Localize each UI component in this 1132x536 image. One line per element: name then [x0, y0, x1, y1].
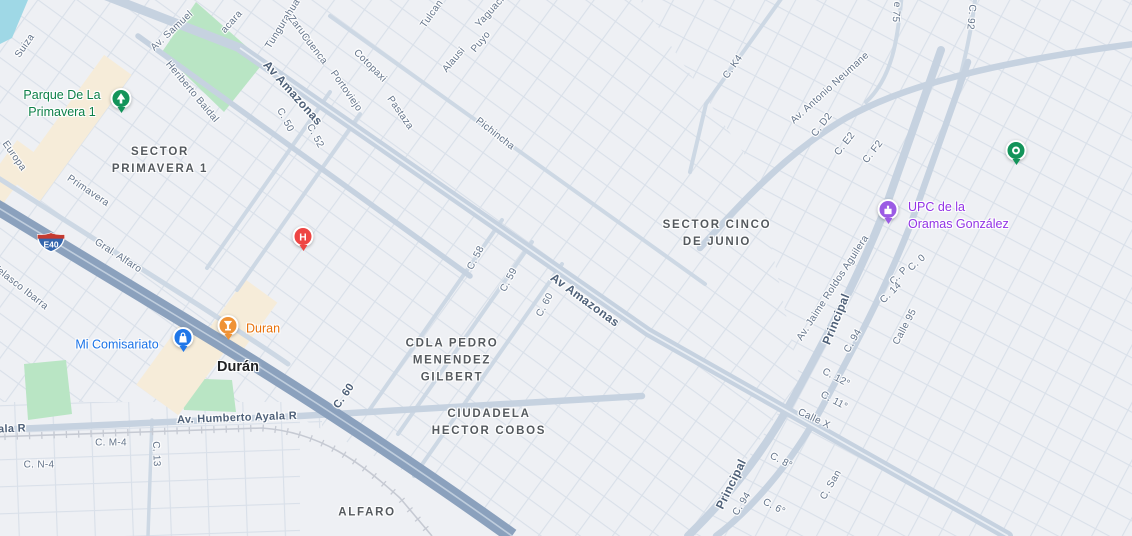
poi-marker-duran-restaurant[interactable]: [218, 315, 239, 336]
poi-label-mi-comisariato[interactable]: Mi Comisariato: [75, 337, 158, 354]
poi-label-line: UPC de la: [908, 199, 1009, 216]
tree-icon: [115, 92, 128, 105]
poi-label-duran-restaurant[interactable]: Duran: [246, 321, 280, 338]
poi-label-line: Mi Comisariato: [75, 337, 158, 354]
poi-marker-mi-comisariato[interactable]: [173, 327, 194, 348]
poi-marker-hospital[interactable]: H: [293, 226, 314, 247]
poi-label-line: Primavera 1: [23, 104, 100, 121]
poi-label-line: Oramas González: [908, 216, 1009, 233]
poi-label-parque-de-la-primavera-1[interactable]: Parque De LaPrimavera 1: [23, 87, 100, 121]
ring-icon: [1010, 144, 1023, 157]
poi-marker-upc-de-la-oramas-gonzalez[interactable]: [878, 199, 899, 220]
map-canvas[interactable]: SuizaAv. SamuelacaraTungurahuaZarumaCuen…: [0, 0, 1132, 536]
bag-icon: [177, 331, 190, 344]
poi-marker-green-place[interactable]: [1006, 140, 1027, 161]
police-icon: [882, 203, 895, 216]
svg-text:H: H: [299, 232, 306, 243]
map-base-layer: [0, 0, 1132, 536]
poi-label-line: Duran: [246, 321, 280, 338]
city-label[interactable]: Durán: [217, 359, 259, 375]
poi-label-line: Parque De La: [23, 87, 100, 104]
poi-label-upc-de-la-oramas-gonzalez[interactable]: UPC de laOramas González: [908, 199, 1009, 233]
park-area-southwest: [24, 360, 72, 420]
poi-marker-parque-de-la-primavera-1[interactable]: [111, 88, 132, 109]
cocktail-icon: [222, 319, 235, 332]
hospital-icon: H: [297, 230, 310, 243]
